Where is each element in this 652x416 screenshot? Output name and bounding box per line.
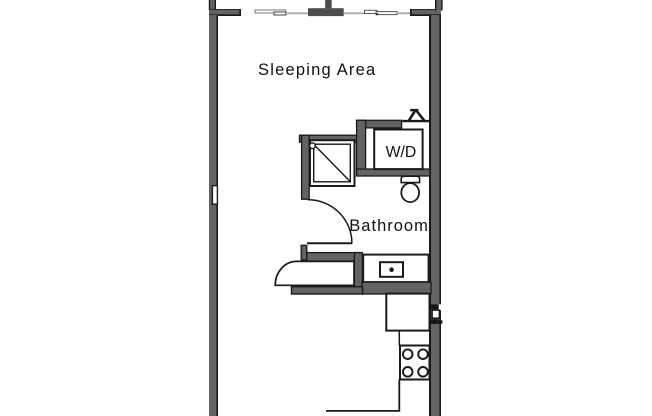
svg-text:W/D: W/D <box>386 144 417 161</box>
svg-text:Sleeping Area: Sleeping Area <box>258 61 376 79</box>
svg-text:Bathroom: Bathroom <box>349 217 429 235</box>
